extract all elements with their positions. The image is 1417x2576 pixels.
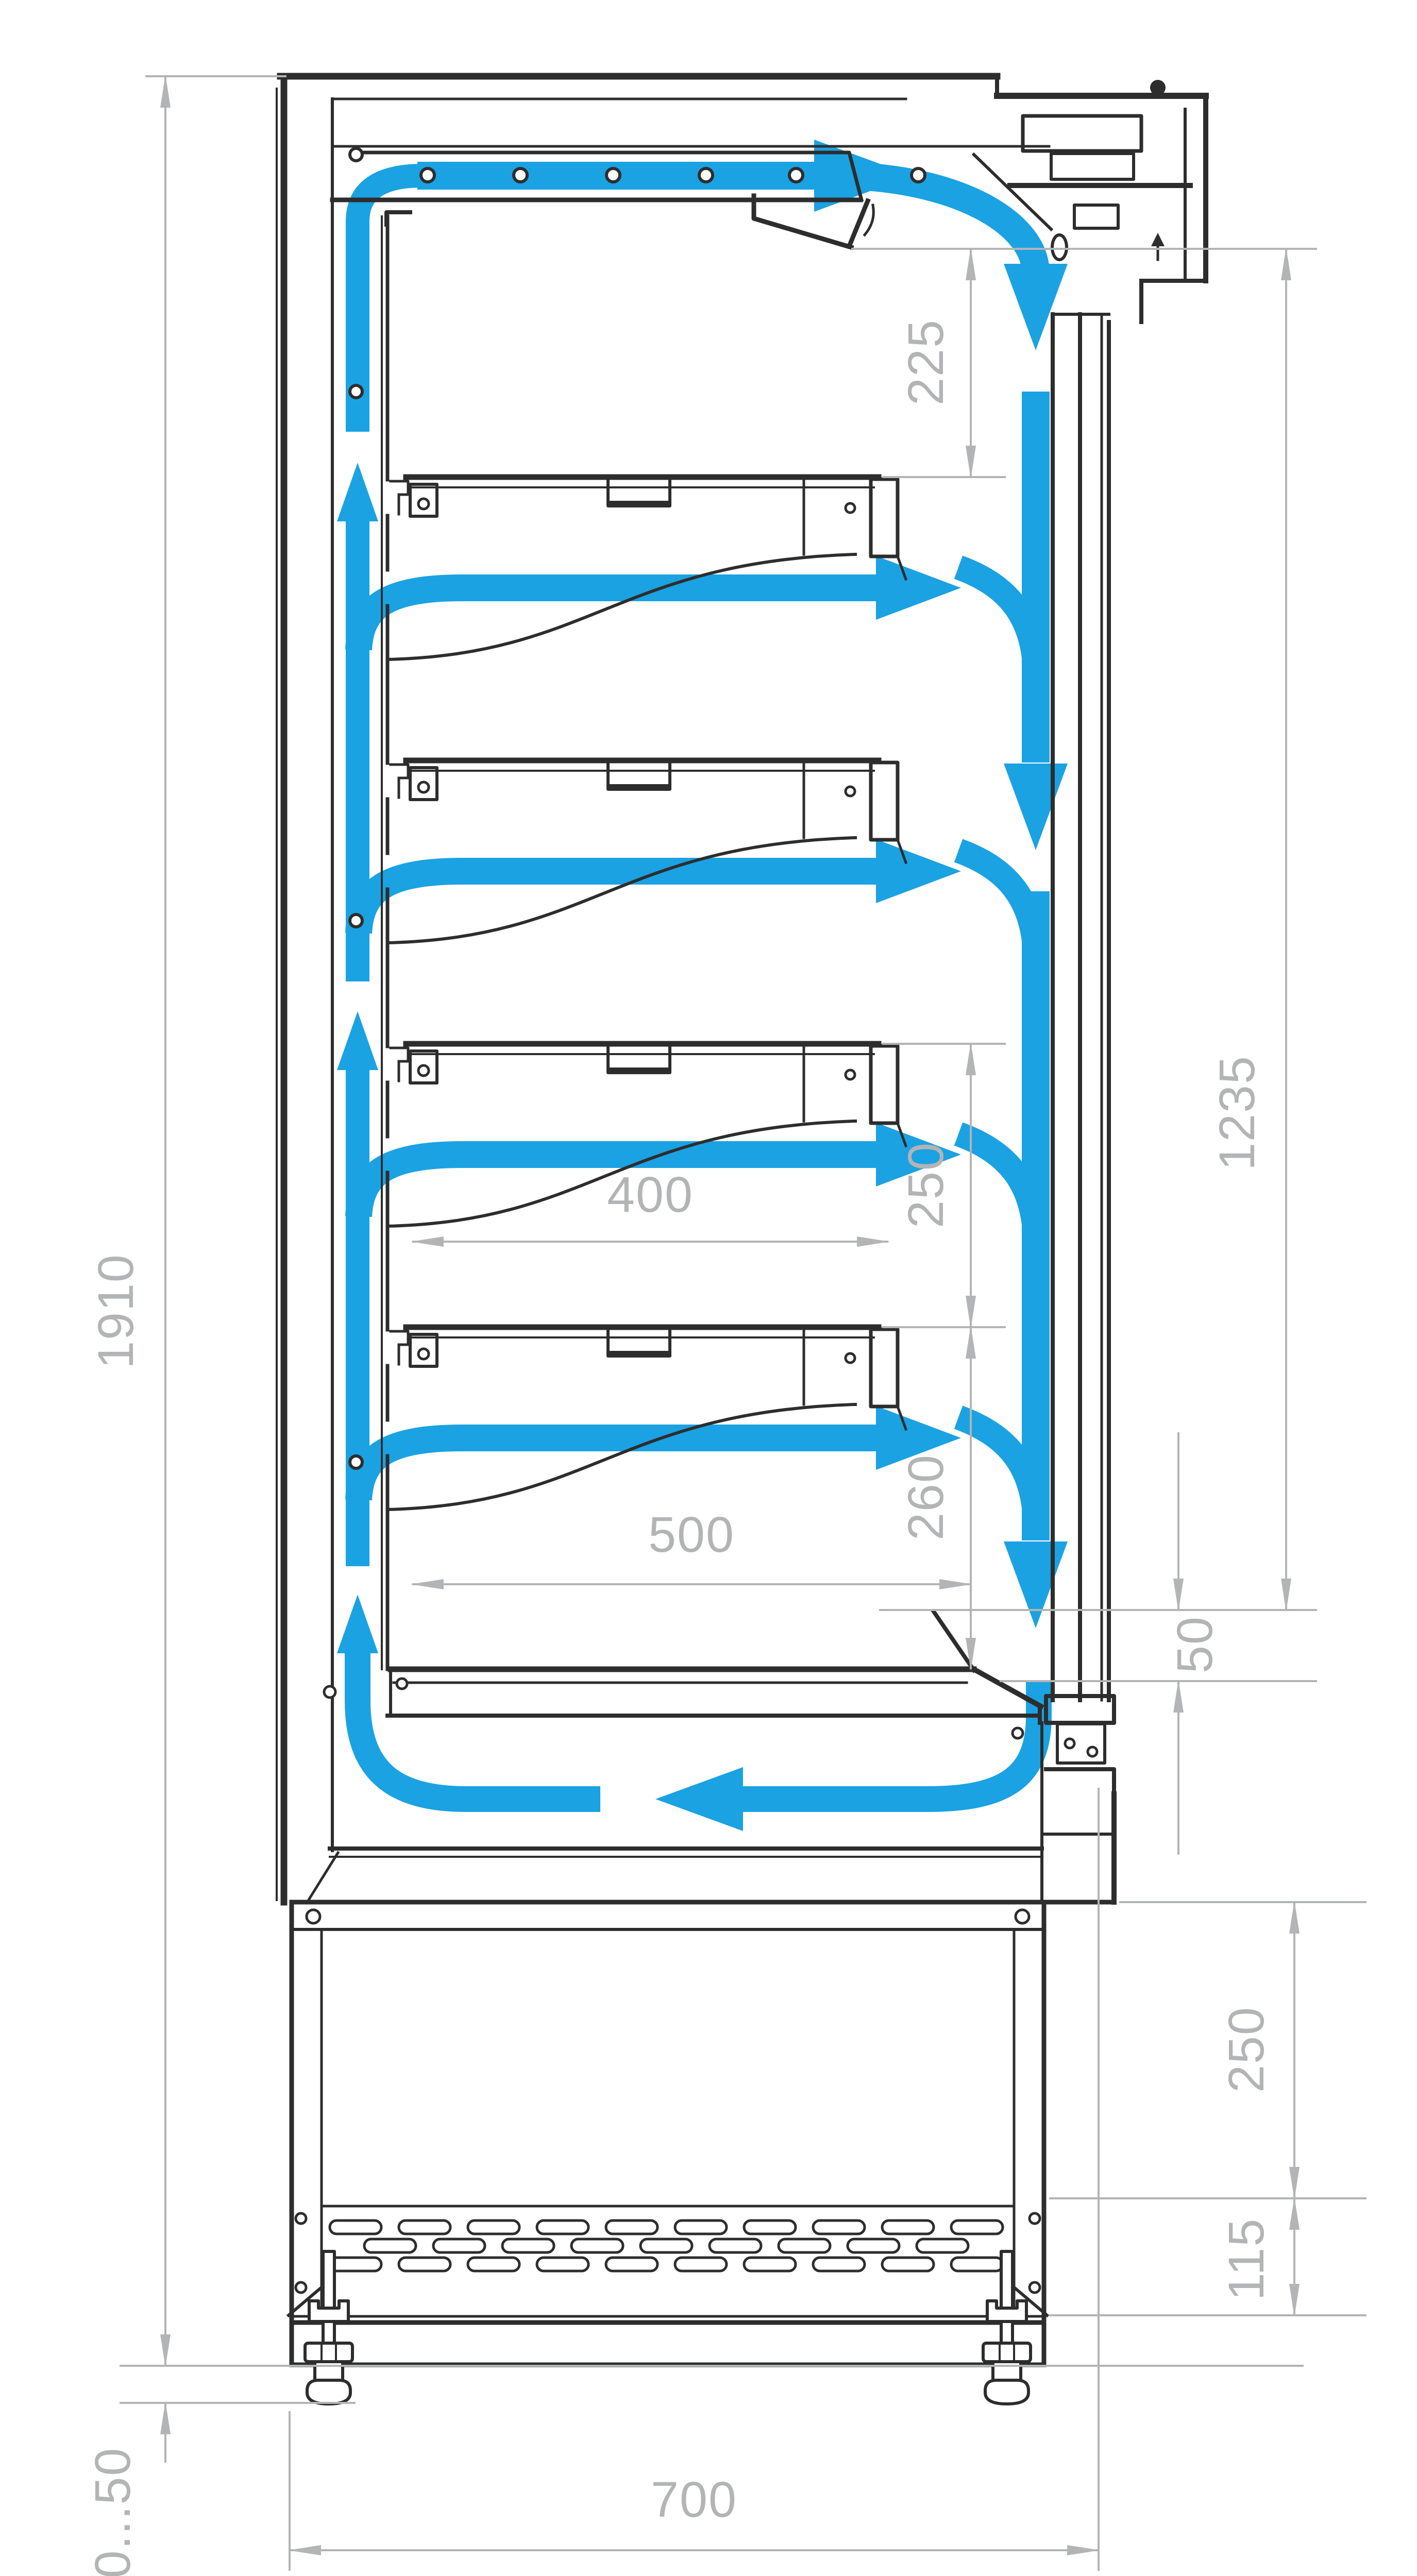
grille-slot bbox=[433, 2239, 485, 2252]
airflow-return-right bbox=[743, 1681, 1039, 1799]
grille-slot bbox=[330, 2221, 381, 2234]
price-tag-rail bbox=[871, 479, 898, 556]
grille-slot bbox=[951, 2221, 1003, 2234]
airflow-shelf-arrow bbox=[359, 871, 876, 933]
grille-slot bbox=[606, 2258, 657, 2271]
airflow-return-left bbox=[358, 1653, 600, 1799]
outlet-flap bbox=[754, 196, 851, 247]
airflow-down-arrowhead bbox=[1004, 264, 1068, 350]
price-tag-rail bbox=[871, 762, 898, 840]
pivot-symbol bbox=[1151, 233, 1165, 246]
bolt bbox=[1030, 2213, 1040, 2224]
return-air-flap bbox=[934, 1612, 974, 1670]
grille-slot bbox=[848, 2239, 899, 2252]
airflow-up-arrowhead bbox=[337, 1595, 378, 1653]
panel-holes bbox=[324, 148, 925, 1698]
grille-slot bbox=[882, 2221, 934, 2234]
price-tag-rail bbox=[871, 1329, 898, 1406]
grille-slot bbox=[813, 2258, 865, 2271]
grille-slot bbox=[779, 2239, 830, 2252]
dimension-shelf-depth: 400 bbox=[412, 1166, 888, 1242]
price-tag-rail bbox=[871, 1046, 898, 1123]
grille-slot bbox=[537, 2258, 588, 2271]
grille-slot bbox=[537, 2221, 588, 2234]
airflow-curtain-top-arc bbox=[835, 176, 1036, 308]
bolt bbox=[296, 2282, 306, 2293]
dimension-label: 260 bbox=[898, 1454, 954, 1540]
dimension-label: 115 bbox=[1218, 2218, 1274, 2301]
bracket-hole bbox=[418, 499, 429, 509]
grille-slot bbox=[640, 2239, 692, 2252]
airflow-up-arrowhead bbox=[337, 463, 378, 521]
shelf-light-cable bbox=[387, 1404, 855, 1510]
refrigerated-cabinet-section-drawing: 1910 30...50 225 250 260 1235 bbox=[0, 0, 1417, 2576]
bracket-hole bbox=[418, 782, 429, 792]
grille-slot bbox=[744, 2258, 796, 2271]
dimension-label: 30...50 bbox=[85, 2447, 141, 2576]
gasket-bulb bbox=[1052, 235, 1067, 260]
airflow-right-arrowhead bbox=[876, 839, 961, 903]
grille-slot bbox=[813, 2221, 865, 2234]
shelf-bracket bbox=[410, 768, 437, 800]
foot-spindle bbox=[1001, 2251, 1013, 2344]
bracket-hole bbox=[418, 1065, 429, 1076]
airflow-down-arrowhead bbox=[1004, 1541, 1068, 1628]
shelf-front-hole bbox=[846, 1353, 855, 1363]
outlet-damper-blade bbox=[849, 201, 868, 246]
dimension-label: 250 bbox=[1218, 2006, 1274, 2093]
grille-slot bbox=[951, 2258, 1003, 2271]
airflow-left-arrowhead bbox=[655, 1767, 743, 1831]
shelf-front-hole bbox=[846, 1070, 855, 1079]
airflow-circulation bbox=[337, 140, 1068, 1831]
airflow-shelf-level-1 bbox=[359, 556, 1036, 683]
shelf-1 bbox=[387, 477, 906, 659]
shelf-bracket bbox=[410, 1334, 437, 1366]
shelf-bracket bbox=[410, 1051, 437, 1083]
dimension-vent-grille-height: 115 bbox=[1049, 2198, 1367, 2315]
shelf-front-hole bbox=[846, 503, 855, 513]
grille-slot bbox=[917, 2239, 968, 2252]
dimension-deck-depth: 500 bbox=[412, 1506, 971, 1584]
adjustable-foot-right bbox=[983, 2251, 1031, 2404]
dimension-label: 225 bbox=[898, 319, 954, 405]
shelf-hook bbox=[391, 1331, 408, 1364]
foot-pad bbox=[307, 2380, 350, 2404]
grille-slot bbox=[364, 2239, 416, 2252]
airflow-down-arrowhead bbox=[1004, 764, 1068, 850]
airflow-shelf-level-2 bbox=[359, 839, 1036, 967]
grille-slot bbox=[468, 2258, 519, 2271]
airflow-shelf-arrow bbox=[359, 588, 876, 650]
dimension-shelf-spacing: 250 bbox=[882, 1044, 1006, 1327]
shelves bbox=[387, 477, 906, 1510]
grille-slot bbox=[710, 2239, 761, 2252]
bolt bbox=[296, 2213, 306, 2224]
grille-slot bbox=[882, 2258, 934, 2271]
sensor-bracket bbox=[386, 212, 410, 225]
bolt bbox=[1030, 2282, 1040, 2293]
dimension-last-shelf-to-deck: 260 bbox=[898, 1327, 971, 1669]
bracket-hole bbox=[418, 1349, 429, 1359]
dimension-canopy-to-first-shelf: 225 bbox=[851, 249, 1317, 477]
grille-slot bbox=[744, 2221, 796, 2234]
grille-slot bbox=[606, 2221, 657, 2234]
grille-slot bbox=[468, 2221, 519, 2234]
dimension-air-curtain-height: 1235 bbox=[879, 249, 1317, 1610]
adjustable-feet bbox=[305, 2251, 1031, 2404]
bottom-deck bbox=[309, 1612, 1042, 1899]
dimension-label: 500 bbox=[648, 1506, 735, 1563]
foot-pad bbox=[985, 2380, 1028, 2404]
grille-slot bbox=[330, 2258, 381, 2271]
dimension-label: 50 bbox=[1167, 1616, 1223, 1673]
dimension-label: 400 bbox=[607, 1166, 694, 1223]
dimension-overall-height: 1910 bbox=[88, 76, 286, 2366]
dimension-overall-depth: 700 bbox=[290, 1788, 1099, 2571]
shelf-light-cable bbox=[387, 554, 855, 659]
door-bottom-frame bbox=[1042, 1696, 1114, 1902]
shelf-hook bbox=[391, 1048, 408, 1081]
foot-stem bbox=[993, 2362, 1021, 2381]
bolt bbox=[1016, 1910, 1029, 1923]
foot-stem bbox=[315, 2362, 343, 2381]
shelf-front-hole bbox=[846, 787, 855, 796]
machine-compartment-plinth bbox=[289, 1902, 1114, 2404]
airflow-right-arrowhead bbox=[876, 556, 961, 620]
grille-slot bbox=[399, 2221, 450, 2234]
dimension-label: 700 bbox=[651, 2471, 737, 2528]
airflow-merge-hook bbox=[958, 851, 1036, 967]
foot-adjust-nut bbox=[305, 2343, 352, 2362]
bolt bbox=[307, 1910, 320, 1923]
shelf-light-cable bbox=[387, 838, 855, 943]
airflow-shelf-arrow bbox=[359, 1438, 876, 1500]
shelf-hook bbox=[391, 481, 408, 514]
grille-slot bbox=[399, 2258, 450, 2271]
grille-slot bbox=[502, 2239, 554, 2252]
dimension-plinth-height: 250 bbox=[1049, 1902, 1367, 2198]
grille-slot bbox=[571, 2239, 623, 2252]
ventilation-grille bbox=[330, 2221, 1003, 2271]
dimension-label: 1910 bbox=[88, 1253, 144, 1369]
foot-spindle bbox=[323, 2251, 334, 2344]
airflow-up-arrowhead bbox=[337, 1011, 378, 1070]
hinge-pin bbox=[1150, 80, 1166, 95]
dimension-label: 250 bbox=[898, 1142, 954, 1228]
grille-slot bbox=[675, 2221, 727, 2234]
shelf-hook bbox=[391, 765, 408, 798]
dimension-label: 1235 bbox=[1209, 1055, 1265, 1171]
adjustable-foot-left bbox=[305, 2251, 352, 2404]
shelf-4 bbox=[387, 1327, 906, 1510]
cabinet-structure bbox=[277, 76, 1206, 2404]
glass-door bbox=[1053, 314, 1109, 1700]
grille-slot bbox=[675, 2258, 727, 2271]
door-top-frame bbox=[974, 76, 1206, 322]
shelf-bracket bbox=[410, 484, 437, 516]
shelf-2 bbox=[387, 760, 906, 943]
foot-adjust-nut bbox=[983, 2343, 1031, 2362]
